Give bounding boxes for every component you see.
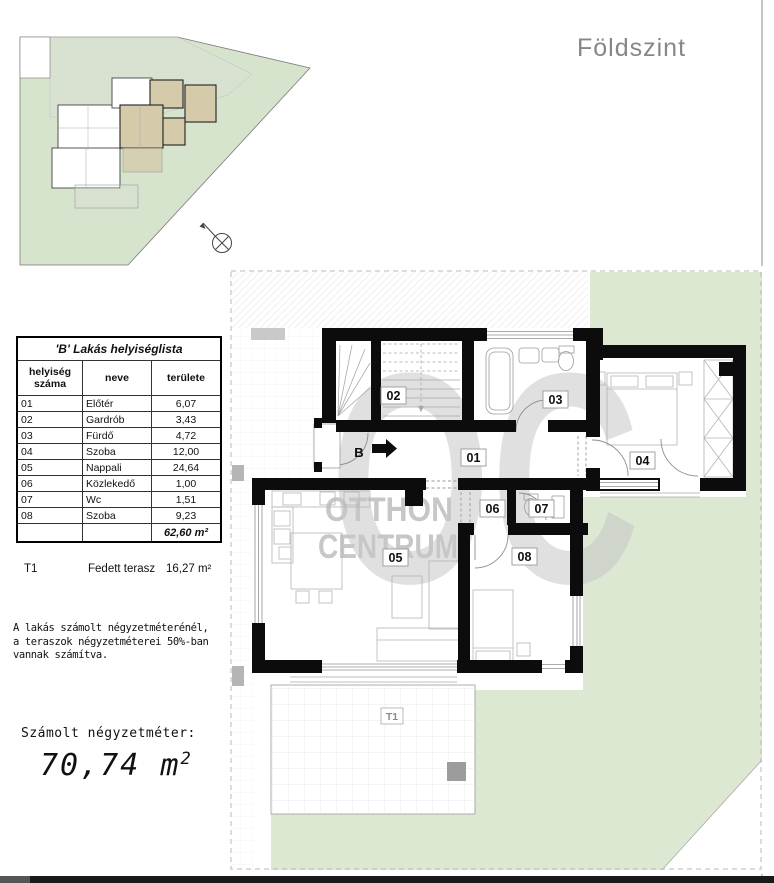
svg-text:03: 03: [549, 393, 563, 407]
table-row: 01Előtér6,07: [17, 396, 221, 412]
room-label-02: 02: [381, 387, 406, 404]
table-row: 08Szoba9,23: [17, 508, 221, 524]
room-label-07: 07: [529, 500, 554, 517]
terrace-t1: [271, 677, 475, 814]
room-label-01: 01: [461, 449, 486, 466]
main-floorplan: OC OTTHON CENTRUM: [226, 266, 766, 874]
table-total-row: 62,60 m²: [17, 524, 221, 543]
svg-text:01: 01: [467, 451, 481, 465]
terrace-code: T1: [24, 563, 37, 575]
table-title: 'B' Lakás helyiséglista: [17, 337, 221, 361]
floorplan-page: Földszint: [0, 0, 774, 883]
svg-text:08: 08: [518, 550, 532, 564]
total-area: 62,60 m²: [152, 524, 222, 543]
svg-text:05: 05: [389, 551, 403, 565]
entrance-b-label: B: [354, 445, 363, 460]
site-plan: [10, 25, 320, 270]
computed-label: Számolt négyzetméter:: [21, 726, 196, 741]
svg-text:T1: T1: [386, 711, 398, 723]
svg-text:02: 02: [387, 389, 401, 403]
col-header-number: helyiség száma: [17, 361, 83, 396]
compass-icon: [200, 223, 232, 253]
room-label-05: 05: [383, 549, 408, 566]
terrace-label-t1: T1: [381, 708, 403, 724]
svg-text:07: 07: [535, 502, 549, 516]
room-label-08: 08: [512, 548, 537, 565]
site-corner-notch: [20, 37, 50, 78]
svg-text:06: 06: [486, 502, 500, 516]
room-list-table: 'B' Lakás helyiséglista helyiség száma n…: [16, 336, 222, 543]
terrace-name: Fedett terasz: [88, 563, 178, 575]
room-label-04: 04: [630, 452, 655, 469]
table-row: 02Gardrób3,43: [17, 412, 221, 428]
table-row: 07Wc1,51: [17, 492, 221, 508]
svg-text:04: 04: [636, 454, 650, 468]
neighbour-ghost: [232, 330, 322, 490]
bottom-bar: [0, 876, 774, 883]
computed-area: 70,74 m2: [40, 748, 191, 783]
col-header-name: neve: [83, 361, 152, 396]
table-row: 05Nappali24,64: [17, 460, 221, 476]
room-label-06: 06: [480, 500, 505, 517]
table-header-row: helyiség száma neve területe: [17, 361, 221, 396]
col-header-area: területe: [152, 361, 222, 396]
room-label-03: 03: [543, 391, 568, 408]
table-row: 06Közlekedő1,00: [17, 476, 221, 492]
table-row: 03Fürdő4,72: [17, 428, 221, 444]
page-title: Földszint: [577, 34, 686, 63]
table-row: 04Szoba12,00: [17, 444, 221, 460]
calculation-note: A lakás számolt négyzetméterénél, a tera…: [13, 622, 238, 663]
terrace-pillar: [447, 762, 466, 781]
